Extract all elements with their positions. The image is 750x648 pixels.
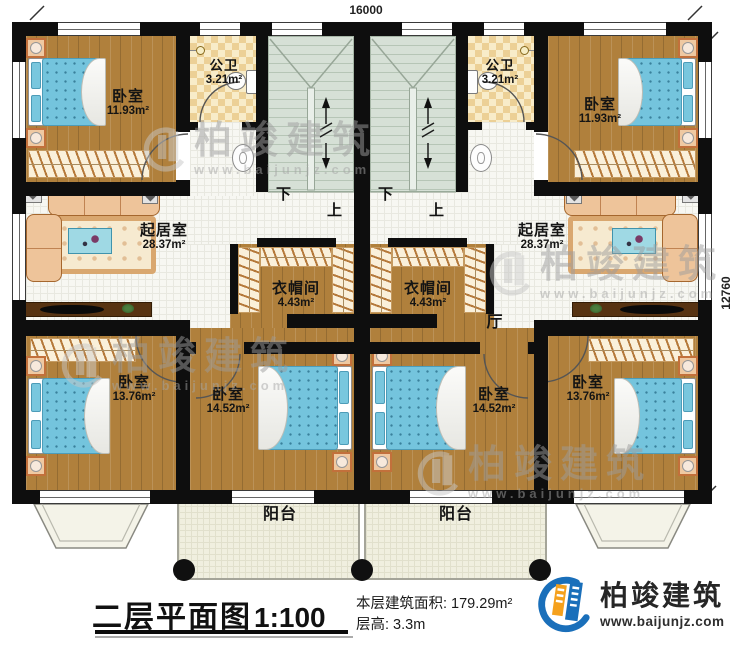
wall	[468, 122, 482, 130]
window	[272, 22, 322, 36]
room-label-balcony-left: 阳台	[232, 506, 328, 524]
room-name: 起居室	[494, 222, 590, 239]
wardrobe-bedroom-top-left	[28, 150, 150, 178]
room-name: 阳台	[408, 506, 504, 524]
room-label-bedroom-bottom-mid-left: 卧室14.52m²	[182, 386, 274, 416]
sofa	[26, 214, 62, 282]
wall	[534, 320, 698, 336]
floor-area-label: 本层建筑面积:	[356, 596, 447, 612]
wall	[526, 122, 534, 130]
dimension-top: 16000	[316, 3, 416, 17]
bay-window	[574, 490, 684, 504]
room-label-bathroom-right: 公卫3.21m²	[462, 58, 538, 87]
cloakroom-left-rack-north	[260, 247, 332, 267]
brand-website: www.baijunjz.com	[600, 614, 725, 629]
wall	[190, 342, 196, 354]
floor-plan-sheet: 卧室11.93m² 公卫3.21m² 公卫3.21m² 卧室11.93m² 起居…	[0, 0, 750, 648]
nightstand	[678, 38, 698, 58]
wall	[176, 180, 190, 196]
room-name: 卧室	[552, 96, 648, 113]
nightstand	[678, 456, 698, 476]
room-area: 4.43m²	[380, 297, 476, 310]
room-name: 卧室	[182, 386, 274, 403]
sheet-scale: 1:100	[254, 602, 326, 633]
bay-window	[40, 490, 150, 504]
room-name: 卧室	[86, 374, 182, 391]
room-name: 起居室	[116, 222, 212, 239]
room-area: 13.76m²	[86, 391, 182, 404]
staircase-right	[370, 36, 456, 192]
sink	[232, 144, 254, 172]
column	[351, 559, 373, 581]
wall	[528, 342, 534, 354]
staircase-left-linework	[268, 36, 354, 192]
wall	[26, 320, 190, 336]
room-name: 衣帽间	[248, 280, 344, 297]
floor-height-label: 层高:	[356, 617, 389, 633]
room-name: 衣帽间	[380, 280, 476, 297]
room-area: 14.52m²	[182, 403, 274, 416]
room-area: 13.76m²	[540, 391, 636, 404]
stair-up-label: 上	[429, 199, 444, 220]
nightstand	[26, 128, 46, 148]
window	[484, 22, 524, 36]
tv-screen	[40, 305, 104, 314]
wall	[190, 122, 198, 130]
room-label-bedroom-bottom-right: 卧室13.76m²	[540, 374, 636, 404]
wall	[370, 342, 480, 354]
dimension-right: 12760	[719, 267, 733, 319]
plant	[590, 304, 602, 313]
stair-down-label: 下	[276, 183, 291, 204]
room-area: 4.43m²	[248, 297, 344, 310]
wall	[388, 238, 467, 247]
nightstand	[26, 356, 46, 376]
bed-headboard	[680, 378, 696, 454]
room-label-living-right: 起居室28.37m²	[494, 222, 590, 252]
balcony-door	[232, 490, 314, 504]
room-label-cloakroom-left: 衣帽间4.43m²	[248, 280, 344, 310]
bed-headboard	[680, 58, 696, 126]
room-area: 28.37m²	[494, 239, 590, 252]
tv-screen	[620, 305, 684, 314]
room-area: 3.21m²	[462, 74, 538, 87]
room-name: 公卫	[186, 58, 262, 74]
room-label-bedroom-top-right: 卧室11.93m²	[552, 96, 648, 126]
ceiling-lamp-icon	[520, 46, 529, 55]
floor-area-value: 179.29m²	[451, 596, 512, 612]
room-name: 卧室	[80, 88, 176, 105]
wall	[244, 342, 354, 354]
floor-height-value: 3.3m	[393, 617, 425, 633]
sofa	[662, 214, 698, 282]
room-area: 14.52m²	[448, 403, 540, 416]
room-label-balcony-right: 阳台	[408, 506, 504, 524]
room-label-bedroom-bottom-left: 卧室13.76m²	[86, 374, 182, 404]
room-label-cloakroom-right: 衣帽间4.43m²	[380, 280, 476, 310]
window	[12, 214, 26, 300]
window	[584, 22, 666, 36]
floor-height-row: 层高:3.3m	[356, 615, 516, 636]
window	[12, 62, 26, 138]
room-label-hall-right: 厅	[482, 314, 508, 332]
room-name: 卧室	[540, 374, 636, 391]
room-name: 卧室	[448, 386, 540, 403]
bed-headboard	[336, 366, 352, 450]
wall	[26, 182, 176, 196]
title-underline-thin	[95, 636, 353, 638]
plant	[122, 304, 134, 313]
balcony-door	[410, 490, 492, 504]
coffee-table	[612, 228, 656, 254]
window	[200, 22, 240, 36]
stair-down-label: 下	[378, 183, 393, 204]
wall	[486, 244, 494, 314]
window	[402, 22, 452, 36]
wall	[242, 122, 256, 130]
nightstand	[26, 456, 46, 476]
room-area: 28.37m²	[116, 239, 212, 252]
nightstand	[678, 356, 698, 376]
room-area: 11.93m²	[552, 113, 648, 126]
room-name: 厅	[482, 314, 508, 332]
sheet-info: 本层建筑面积:179.29m² 层高:3.3m	[356, 594, 516, 636]
title-underline	[95, 630, 348, 634]
staircase-right-linework	[370, 36, 456, 192]
floor-area-row: 本层建筑面积:179.29m²	[356, 594, 516, 615]
ceiling-lamp-icon	[196, 46, 205, 55]
window	[58, 22, 140, 36]
nightstand	[678, 128, 698, 148]
wall	[370, 314, 437, 328]
wall	[354, 22, 370, 504]
room-area: 11.93m²	[80, 105, 176, 118]
wall	[230, 244, 238, 314]
room-label-bathroom-left: 公卫3.21m²	[186, 58, 262, 87]
room-label-bedroom-top-left: 卧室11.93m²	[80, 88, 176, 118]
room-name: 公卫	[462, 58, 538, 74]
wall	[548, 182, 698, 196]
room-area: 3.21m²	[186, 74, 262, 87]
coffee-table	[68, 228, 112, 254]
nightstand	[26, 38, 46, 58]
room-label-bedroom-bottom-mid-right: 卧室14.52m²	[448, 386, 540, 416]
sink	[470, 144, 492, 172]
staircase-left	[268, 36, 354, 192]
window	[698, 62, 712, 138]
room-label-living-left: 起居室28.37m²	[116, 222, 212, 252]
wall	[287, 314, 354, 328]
brand-text: 柏竣建筑 www.baijunjz.com	[600, 582, 725, 629]
brand-name: 柏竣建筑	[600, 582, 725, 610]
column	[173, 559, 195, 581]
wardrobe-bedroom-top-right	[574, 150, 696, 178]
floor-hall-strip-left	[190, 244, 230, 328]
nightstand	[332, 452, 352, 472]
nightstand	[372, 452, 392, 472]
cloakroom-right-rack-north	[392, 247, 464, 267]
wall	[534, 180, 548, 196]
brand-logo: 柏竣建筑 www.baijunjz.com	[532, 574, 725, 636]
window	[698, 214, 712, 300]
brand-logo-icon	[532, 574, 594, 636]
stair-up-label: 上	[327, 199, 342, 220]
room-name: 阳台	[232, 506, 328, 524]
wall	[257, 238, 336, 247]
